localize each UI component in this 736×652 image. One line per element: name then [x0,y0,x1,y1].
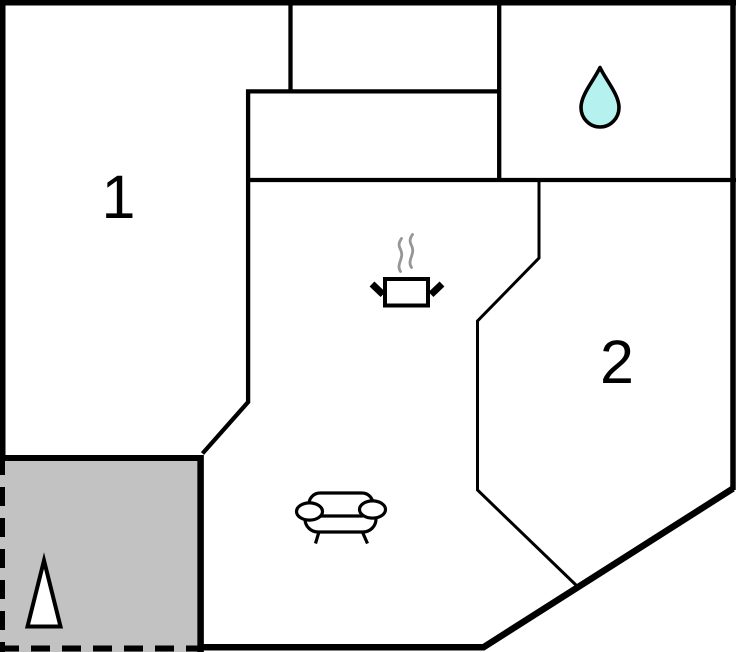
outer-wall-diagonal-bottom [198,489,733,648]
room-1-label: 1 [102,163,136,231]
sofa-armrest-left [297,503,323,520]
sofa-icon [297,493,386,544]
cooking-pot-icon [372,235,442,306]
pot-handle-right [431,284,442,295]
wall-room1-right [203,90,249,454]
water-drop-icon [581,68,619,128]
outer-walls [0,0,736,490]
pot-handle-left [372,284,383,295]
floorplan-page: 1 2 [0,0,736,652]
steam-icon [399,235,413,272]
sofa-armrest-right [360,501,386,518]
pot-body [385,279,428,306]
wall-room2-partition [478,180,578,587]
room-2-label: 2 [600,328,634,396]
interior-walls [203,0,736,454]
floorplan-canvas: 1 2 [0,0,736,652]
